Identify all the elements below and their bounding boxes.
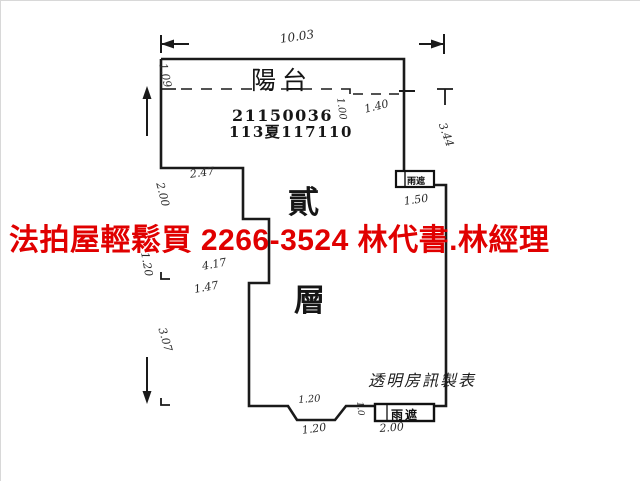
dim-top-left-arrowhead (161, 40, 174, 49)
ad-overlay-text: 法拍屋輕鬆買 2266-3524 林代書.林經理 (9, 215, 640, 259)
dim-left-down-arrowhead (143, 391, 152, 404)
canopy-top-label: 雨遮 (407, 174, 425, 187)
dim-canopy-bottom-side: 1.0 (354, 401, 365, 416)
dim-left-up-arrowhead (143, 86, 152, 99)
dim-canopy-bottom-width: 2.00 (379, 420, 404, 435)
floor-label-char-2: 層 (294, 275, 325, 320)
dim-tick-t-right (437, 89, 453, 105)
case-number-line2: 113夏117110 (229, 121, 353, 142)
dim-tick-l-upper (161, 272, 170, 279)
maker-credit-label: 透明房訊製表 (368, 367, 476, 391)
dim-top-right-arrowhead (431, 40, 444, 49)
balcony-label: 陽台 (251, 61, 313, 97)
floor-plan-page: 陽台 21150036 113夏117110 貳 層 雨遮 雨遮 透明房訊製表 … (0, 0, 640, 481)
dashed-line-step (341, 89, 350, 94)
dim-bay-top: 1.20 (298, 393, 321, 406)
dim-tick-l-lower (161, 398, 170, 405)
